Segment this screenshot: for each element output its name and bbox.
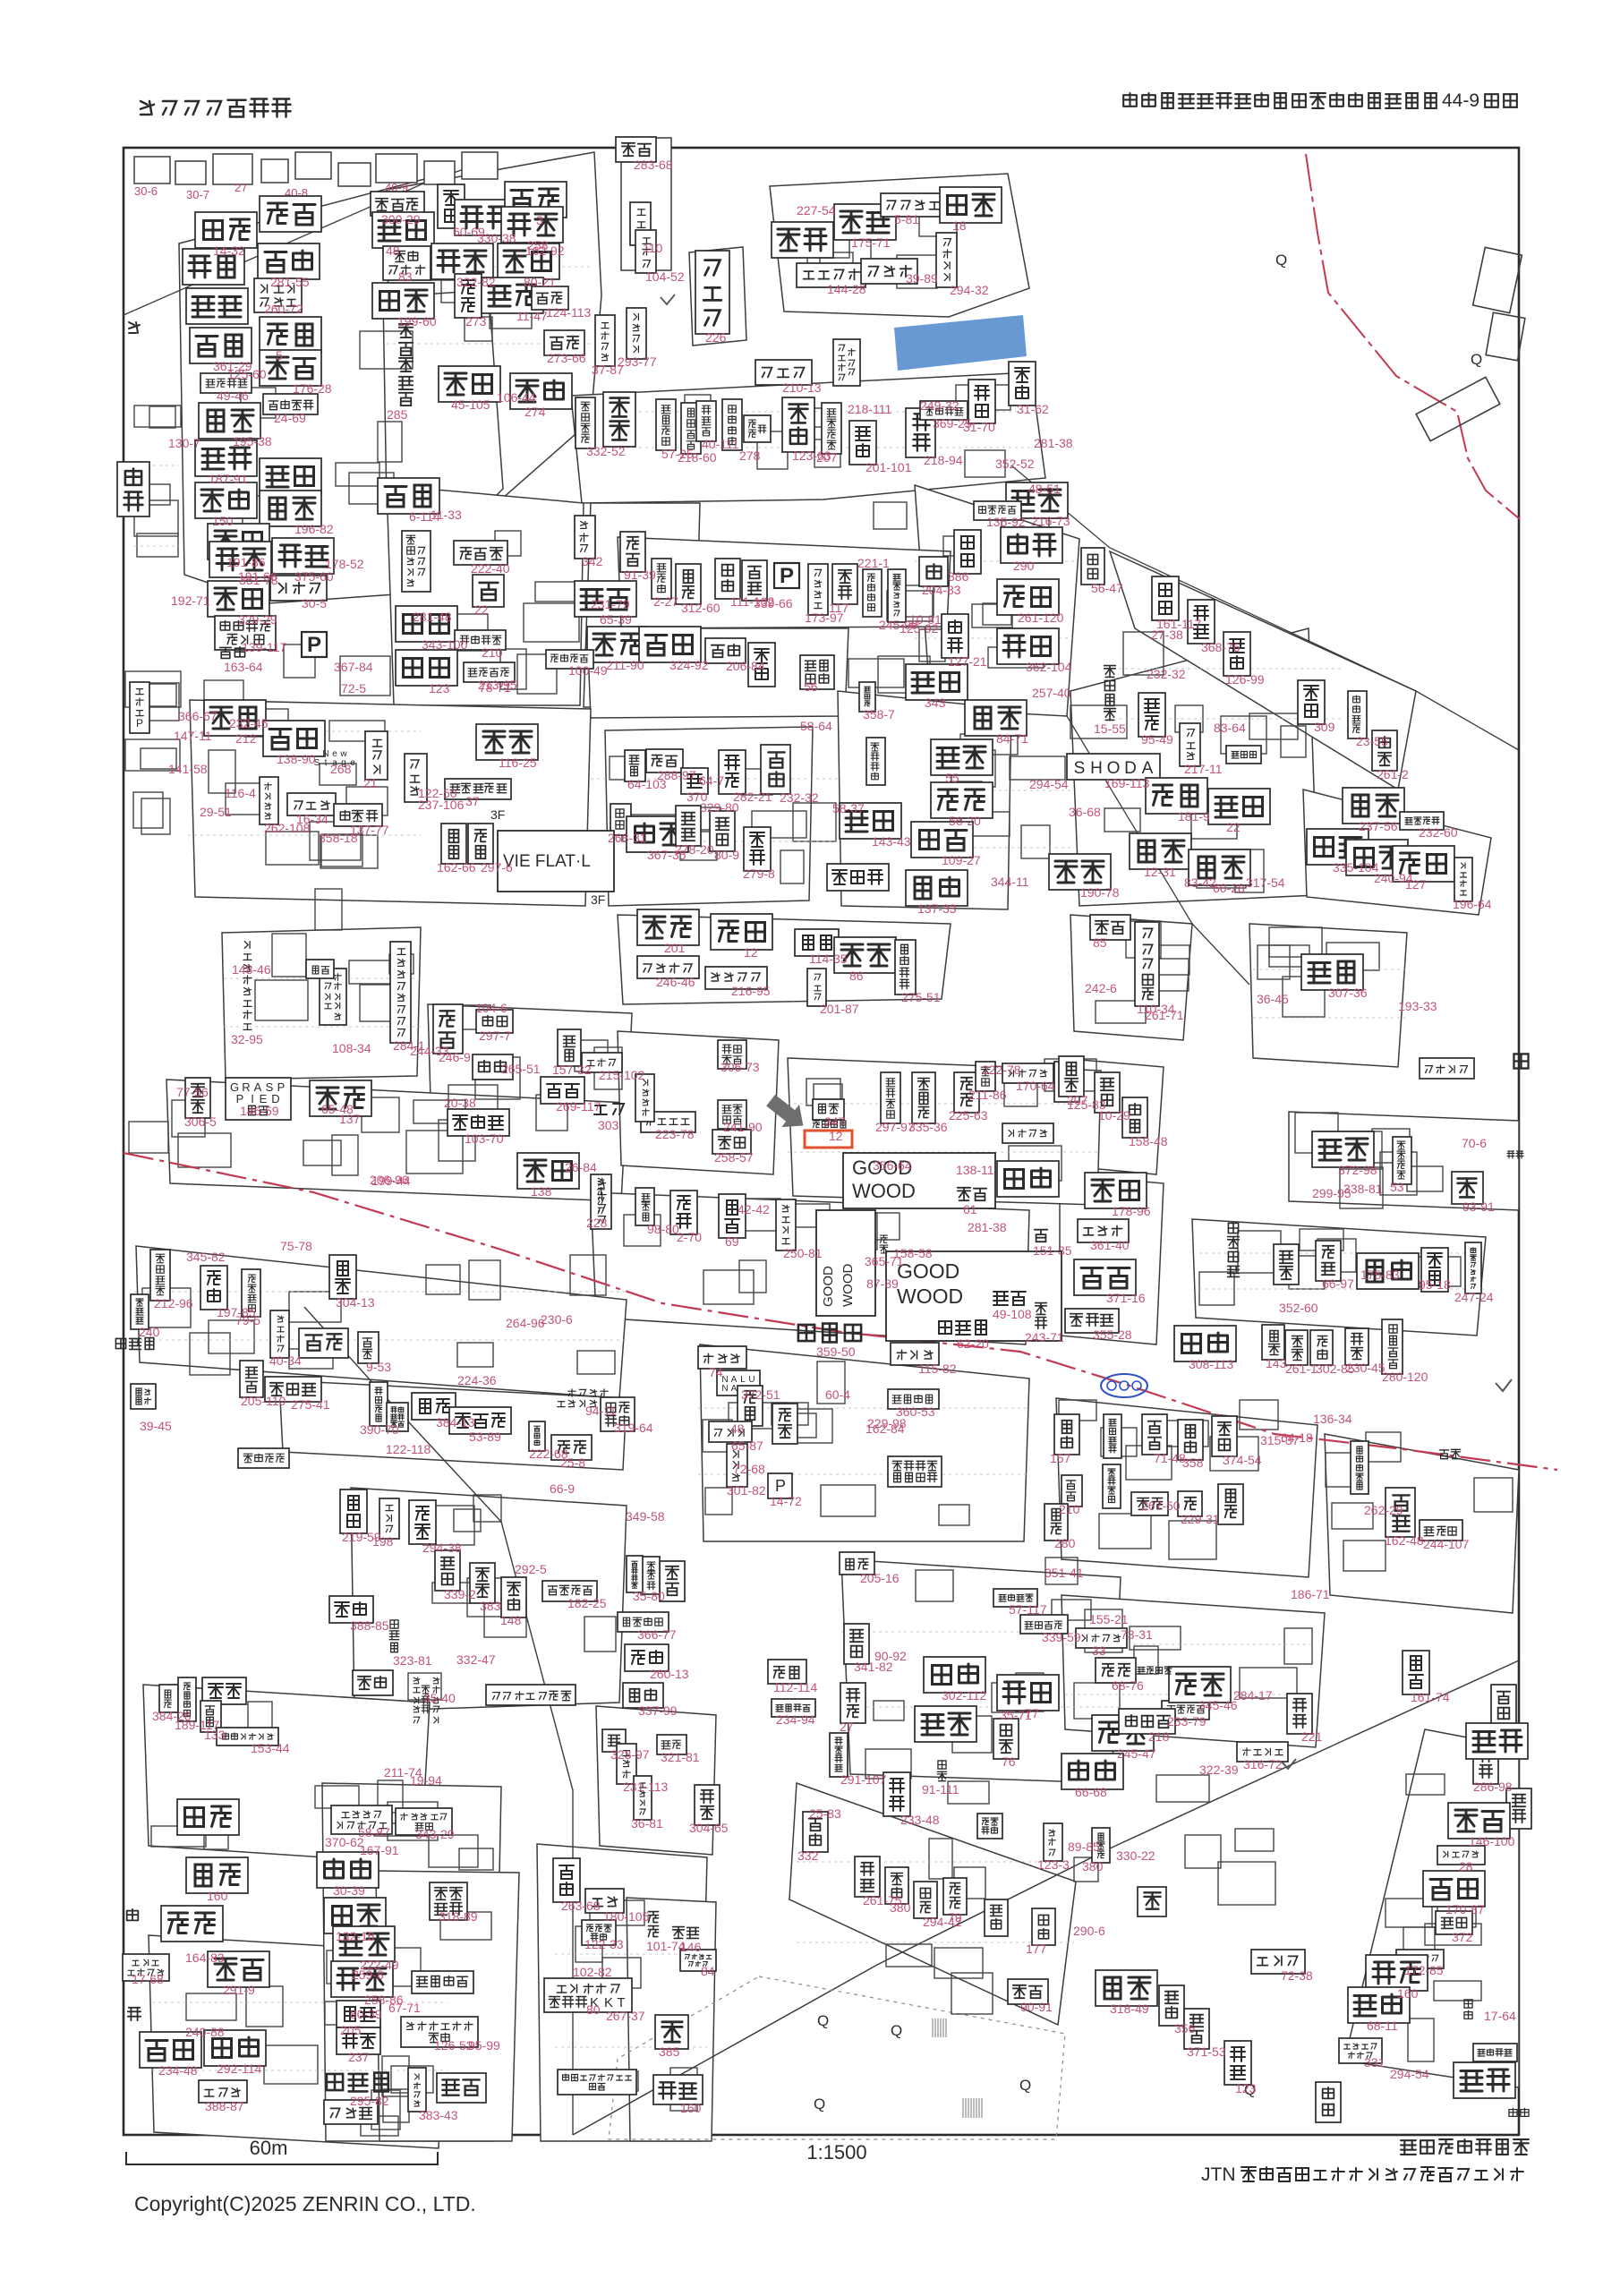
svg-text:275-51: 275-51: [901, 990, 941, 1004]
svg-text:295-82: 295-82: [350, 2094, 389, 2108]
svg-text:P: P: [136, 717, 143, 730]
svg-text:259-8: 259-8: [352, 1967, 384, 1982]
svg-text:304-65: 304-65: [689, 1821, 729, 1835]
svg-text:65-48: 65-48: [321, 1102, 354, 1116]
svg-text:196-82: 196-82: [294, 522, 334, 536]
svg-text:224-36: 224-36: [457, 1373, 497, 1387]
svg-text:138-90: 138-90: [277, 752, 316, 766]
svg-text:95-99: 95-99: [468, 2038, 500, 2053]
svg-text:317-54: 317-54: [1246, 875, 1285, 890]
svg-text:23-55: 23-55: [1356, 734, 1388, 748]
svg-text:245-47: 245-47: [1117, 1746, 1156, 1761]
svg-text:207: 207: [816, 450, 838, 465]
svg-text:170-87: 170-87: [1445, 1902, 1485, 1916]
svg-text:366-67: 366-67: [178, 709, 217, 723]
svg-text:234-94: 234-94: [776, 1712, 815, 1727]
svg-text:302-112: 302-112: [942, 1688, 987, 1703]
svg-text:WOOD: WOOD: [897, 1285, 963, 1308]
svg-text:204-83: 204-83: [922, 583, 961, 597]
svg-text:Q: Q: [891, 2022, 902, 2039]
svg-text:62-20: 62-20: [957, 1336, 989, 1351]
svg-text:199-44: 199-44: [371, 1174, 411, 1188]
svg-text:371-53: 371-53: [1187, 2044, 1226, 2059]
svg-text:280-120: 280-120: [1382, 1370, 1428, 1384]
svg-text:323-81: 323-81: [393, 1653, 432, 1668]
svg-text:175-83: 175-83: [1360, 1267, 1400, 1282]
svg-text:221-1: 221-1: [857, 556, 890, 570]
svg-text:286-98: 286-98: [1473, 1780, 1513, 1794]
svg-text:388-85: 388-85: [350, 1618, 389, 1633]
svg-text:304-13: 304-13: [336, 1295, 375, 1310]
svg-text:268: 268: [330, 762, 352, 776]
svg-text:218: 218: [1148, 1729, 1170, 1744]
svg-text:262-29: 262-29: [1364, 1503, 1403, 1517]
svg-text:249-32: 249-32: [920, 398, 959, 413]
svg-text:35-71: 35-71: [1000, 1708, 1032, 1722]
svg-text:72-38: 72-38: [1281, 1968, 1313, 1983]
svg-text:89-85: 89-85: [1068, 1839, 1100, 1854]
svg-text:87-89: 87-89: [866, 1276, 899, 1291]
svg-text:158-48: 158-48: [1129, 1134, 1168, 1148]
svg-text:139-117: 139-117: [242, 640, 287, 654]
svg-text:356-64: 356-64: [873, 1158, 912, 1173]
svg-text:83-42: 83-42: [1184, 875, 1216, 890]
svg-text:3F: 3F: [490, 807, 505, 822]
svg-text:273: 273: [465, 314, 487, 329]
svg-text:195-38: 195-38: [233, 434, 272, 448]
svg-text:330-38: 330-38: [477, 231, 516, 245]
svg-text:14-72: 14-72: [770, 1494, 802, 1508]
svg-text:231-113: 231-113: [623, 1780, 669, 1794]
svg-text:55: 55: [945, 771, 959, 785]
svg-text:322-82: 322-82: [456, 275, 496, 289]
svg-text:318-49: 318-49: [1110, 2002, 1149, 2016]
svg-text:70-6: 70-6: [1462, 1136, 1487, 1150]
svg-text:11-47: 11-47: [516, 309, 548, 323]
svg-text:308-113: 308-113: [1189, 1357, 1234, 1371]
svg-text:193-33: 193-33: [1398, 999, 1437, 1013]
svg-text:58-64: 58-64: [800, 719, 832, 733]
svg-text:332-47: 332-47: [456, 1652, 496, 1667]
svg-text:122-50: 122-50: [418, 786, 457, 800]
svg-text:347: 347: [824, 1114, 846, 1129]
svg-text:228: 228: [586, 1216, 608, 1230]
svg-text:57-117: 57-117: [1009, 1602, 1047, 1617]
svg-text:73-31: 73-31: [1121, 1627, 1153, 1642]
svg-text:56-20: 56-20: [949, 814, 981, 828]
svg-text:160: 160: [1397, 1986, 1419, 2001]
svg-text:80-9: 80-9: [714, 848, 739, 862]
svg-text:130-7: 130-7: [168, 436, 200, 450]
svg-text:181-9: 181-9: [1178, 809, 1210, 824]
svg-text:Q: Q: [1471, 351, 1482, 368]
svg-text:380: 380: [890, 1900, 911, 1915]
svg-text:138-11: 138-11: [956, 1163, 994, 1177]
svg-text:218-60: 218-60: [678, 450, 717, 465]
svg-text:148: 148: [500, 1613, 522, 1627]
svg-text:372-51: 372-51: [741, 1387, 780, 1402]
svg-text:95-49: 95-49: [1141, 732, 1173, 747]
svg-text:294-32: 294-32: [950, 283, 989, 297]
svg-text:316-72: 316-72: [1243, 1757, 1283, 1771]
svg-text:237: 237: [348, 2050, 370, 2064]
svg-text:65-87: 65-87: [731, 1438, 763, 1453]
svg-text:386: 386: [948, 569, 969, 584]
svg-text:321-81: 321-81: [661, 1750, 700, 1764]
svg-text:Q: Q: [1019, 2077, 1031, 2094]
svg-text:273-66: 273-66: [547, 351, 586, 365]
svg-text:225-63: 225-63: [949, 1108, 988, 1122]
svg-text:60m: 60m: [250, 2137, 288, 2159]
svg-text:39-45: 39-45: [140, 1419, 172, 1433]
svg-text:284-17: 284-17: [1233, 1688, 1273, 1703]
svg-text:169-113: 169-113: [1104, 776, 1150, 790]
svg-text:60-4: 60-4: [825, 1387, 850, 1402]
svg-text:148-46: 148-46: [232, 962, 271, 977]
svg-text:222-78: 222-78: [982, 1063, 1021, 1077]
svg-text:103-70: 103-70: [465, 1131, 504, 1146]
svg-text:66-9: 66-9: [550, 1481, 575, 1496]
svg-text:12: 12: [829, 1129, 843, 1143]
svg-text:222-40: 222-40: [471, 561, 510, 576]
svg-text:345-82: 345-82: [186, 1250, 226, 1264]
svg-text:190-78: 190-78: [1080, 885, 1120, 900]
svg-text:201-87: 201-87: [820, 1002, 859, 1016]
svg-text:126-99: 126-99: [1225, 672, 1265, 687]
svg-text:390-70: 390-70: [360, 1422, 399, 1437]
svg-text:281-38: 281-38: [968, 1220, 1007, 1234]
svg-text:175-71: 175-71: [851, 235, 891, 250]
svg-text:83: 83: [398, 269, 413, 284]
svg-text:191-86: 191-86: [226, 555, 266, 569]
svg-text:335-36: 335-36: [908, 1120, 948, 1134]
svg-text:69: 69: [725, 1234, 739, 1249]
svg-text:291-107: 291-107: [840, 1772, 887, 1787]
svg-text:t: t: [325, 758, 328, 768]
svg-text:198: 198: [372, 1534, 394, 1549]
svg-text:15-55: 15-55: [1094, 721, 1126, 736]
svg-text:157: 157: [1050, 1451, 1071, 1465]
svg-text:342: 342: [582, 554, 603, 568]
svg-text:48: 48: [730, 1421, 745, 1436]
svg-text:247-24: 247-24: [1454, 1290, 1494, 1304]
svg-text:232-60: 232-60: [1419, 825, 1458, 840]
svg-text:146-100: 146-100: [1469, 1834, 1515, 1848]
svg-text:375-60: 375-60: [294, 569, 334, 584]
svg-text:WOOD: WOOD: [840, 1264, 856, 1307]
svg-text:192-71: 192-71: [171, 593, 210, 608]
svg-text:337-99: 337-99: [638, 1703, 678, 1718]
svg-text:48-51: 48-51: [1028, 482, 1061, 496]
svg-text:11-33: 11-33: [431, 508, 462, 522]
svg-text:31-70: 31-70: [963, 420, 995, 434]
svg-text:71-48: 71-48: [1154, 1451, 1186, 1465]
svg-text:232-32: 232-32: [1147, 667, 1186, 681]
svg-text:293-77: 293-77: [618, 354, 657, 369]
svg-text:60-28: 60-28: [1213, 881, 1245, 895]
svg-text:9-53: 9-53: [366, 1360, 391, 1374]
svg-text:170-64: 170-64: [1016, 1079, 1055, 1093]
svg-text:135-92: 135-92: [986, 515, 1026, 529]
svg-text:VIE FLAT·L: VIE FLAT·L: [503, 852, 591, 871]
svg-text:109-27: 109-27: [942, 853, 981, 867]
svg-text:80: 80: [586, 2002, 601, 2017]
svg-text:244-107: 244-107: [1423, 1537, 1470, 1551]
svg-text:123: 123: [429, 681, 450, 696]
svg-text:356: 356: [1174, 2021, 1196, 2036]
svg-text:281-38: 281-38: [1034, 436, 1073, 450]
svg-text:5: 5: [276, 348, 283, 363]
svg-text:374-54: 374-54: [1223, 1453, 1262, 1467]
svg-text:Q: Q: [817, 2012, 829, 2029]
svg-text:2-70: 2-70: [677, 1230, 702, 1244]
svg-text:212: 212: [235, 731, 257, 746]
svg-text:104-52: 104-52: [645, 269, 685, 284]
svg-text:237-56: 237-56: [1359, 819, 1398, 833]
svg-text:P: P: [307, 633, 321, 657]
svg-text:D: D: [1124, 759, 1137, 778]
svg-text:56: 56: [804, 679, 818, 694]
svg-text:27: 27: [234, 181, 247, 194]
svg-text:40-34: 40-34: [269, 1353, 302, 1368]
svg-text:114-35: 114-35: [809, 952, 848, 966]
svg-text:158-58: 158-58: [893, 1246, 933, 1260]
svg-text:186-71: 186-71: [1291, 1587, 1330, 1601]
svg-text:78-71: 78-71: [479, 680, 511, 695]
svg-text:201: 201: [664, 941, 686, 955]
svg-text:30-39: 30-39: [333, 1883, 365, 1898]
svg-text:339-2: 339-2: [444, 1587, 476, 1601]
svg-text:36-81: 36-81: [631, 1816, 663, 1831]
svg-text:261-120: 261-120: [1018, 610, 1064, 625]
svg-text:329-80: 329-80: [700, 800, 739, 815]
svg-text:146: 146: [680, 1940, 702, 1954]
svg-text:221: 221: [1301, 1729, 1323, 1744]
svg-text:125-60: 125-60: [227, 367, 267, 381]
svg-text:339-66: 339-66: [754, 596, 793, 610]
svg-text:268-31: 268-31: [608, 831, 647, 845]
svg-text:24-69: 24-69: [274, 411, 306, 425]
svg-text:151-35: 151-35: [1033, 1243, 1072, 1258]
svg-text:279-8: 279-8: [743, 866, 775, 881]
svg-text:343-29: 343-29: [415, 1827, 455, 1841]
svg-text:143-43: 143-43: [872, 834, 911, 849]
svg-text:3F: 3F: [591, 892, 605, 907]
svg-text:361-40: 361-40: [1090, 1238, 1130, 1252]
svg-text:108-34: 108-34: [332, 1041, 371, 1055]
svg-text:291-9: 291-9: [223, 1983, 255, 1997]
svg-text:290-6: 290-6: [1073, 1924, 1105, 1938]
svg-text:240-88: 240-88: [185, 2025, 225, 2039]
svg-text:385: 385: [659, 2044, 680, 2059]
svg-text:90-91: 90-91: [1020, 2000, 1053, 2014]
svg-text:352-60: 352-60: [1279, 1301, 1318, 1315]
svg-text:35-40: 35-40: [423, 1691, 456, 1705]
svg-text:330-22: 330-22: [1116, 1848, 1155, 1863]
svg-text:GOOD: GOOD: [897, 1259, 959, 1283]
svg-text:349-58: 349-58: [626, 1509, 665, 1524]
svg-text:30-5: 30-5: [302, 596, 327, 610]
svg-text:68-76: 68-76: [1112, 1678, 1144, 1693]
svg-text:383-43: 383-43: [419, 2108, 458, 2122]
svg-text:368-76: 368-76: [1201, 640, 1241, 654]
svg-text:122-118: 122-118: [386, 1442, 431, 1456]
svg-text:257-40: 257-40: [1032, 686, 1071, 700]
svg-text:153-44: 153-44: [251, 1741, 290, 1755]
svg-text:117: 117: [829, 601, 849, 615]
svg-text:42-42: 42-42: [738, 1202, 770, 1216]
svg-text:180-105: 180-105: [603, 1909, 650, 1924]
svg-text:143: 143: [1266, 1356, 1287, 1370]
svg-text:294-54: 294-54: [1029, 777, 1069, 791]
svg-text:292-114: 292-114: [217, 2061, 262, 2076]
svg-text:25-83: 25-83: [809, 1806, 841, 1821]
svg-text:384-13: 384-13: [436, 1415, 475, 1430]
svg-text:33: 33: [1092, 1643, 1106, 1658]
svg-text:212-96: 212-96: [154, 1296, 193, 1310]
svg-text:243-71: 243-71: [1025, 1330, 1064, 1344]
svg-text:260-72: 260-72: [264, 302, 303, 316]
svg-text:265-51: 265-51: [501, 1062, 541, 1076]
svg-text:90-92: 90-92: [874, 1649, 907, 1663]
svg-text:137-33: 137-33: [917, 901, 957, 916]
svg-text:278: 278: [739, 448, 761, 463]
svg-text:269-117: 269-117: [556, 1099, 601, 1114]
svg-text:64-18: 64-18: [1281, 1430, 1313, 1445]
svg-text:44-9: 44-9: [1442, 90, 1479, 111]
svg-text:162-92: 162-92: [525, 243, 565, 258]
svg-text:123: 123: [1235, 2081, 1257, 2095]
svg-text:241-90: 241-90: [723, 1120, 763, 1134]
svg-text:150: 150: [212, 514, 234, 528]
svg-text:205: 205: [340, 2023, 362, 2037]
svg-text:136-34: 136-34: [1313, 1412, 1352, 1426]
svg-text:H: H: [1090, 759, 1103, 778]
svg-text:127: 127: [1405, 877, 1427, 892]
svg-text:187-91: 187-91: [209, 472, 248, 486]
svg-text:37: 37: [465, 794, 480, 808]
svg-text:210: 210: [482, 645, 503, 660]
svg-text:100-49: 100-49: [568, 663, 608, 678]
svg-text:278-20: 278-20: [675, 842, 714, 857]
svg-text:144-28: 144-28: [827, 282, 866, 296]
svg-text:160: 160: [207, 1889, 228, 1903]
svg-text:66-68: 66-68: [1075, 1785, 1107, 1799]
svg-text:110: 110: [643, 241, 663, 255]
svg-text:232-45: 232-45: [229, 716, 269, 730]
svg-text:372-98: 372-98: [1338, 1163, 1377, 1177]
svg-text:222-68: 222-68: [529, 1447, 568, 1461]
svg-text:122-33: 122-33: [584, 1937, 624, 1951]
svg-text:80-21: 80-21: [524, 275, 556, 289]
svg-text:N: N: [721, 1384, 728, 1394]
svg-text:36-68: 36-68: [1069, 805, 1101, 819]
svg-text:233-79: 233-79: [1167, 1714, 1206, 1728]
svg-text:132-16: 132-16: [336, 1929, 375, 1943]
svg-text:162-66: 162-66: [437, 860, 476, 875]
svg-text:318-89: 318-89: [439, 1909, 478, 1924]
svg-text:205-16: 205-16: [860, 1571, 900, 1585]
svg-text:306-5: 306-5: [184, 1114, 217, 1129]
svg-text:49-108: 49-108: [993, 1307, 1032, 1321]
svg-text:210: 210: [1059, 1502, 1080, 1516]
svg-text:161-74: 161-74: [1411, 1690, 1450, 1704]
svg-text:Q: Q: [1275, 252, 1287, 269]
svg-text:124-113: 124-113: [546, 305, 592, 320]
svg-text:84: 84: [701, 1964, 715, 1978]
svg-text:196-64: 196-64: [1453, 897, 1492, 911]
svg-text:383: 383: [480, 1599, 501, 1613]
svg-text:56-47: 56-47: [1091, 581, 1123, 595]
svg-text:157-32: 157-32: [552, 1063, 592, 1077]
svg-text:GOOD: GOOD: [821, 1266, 836, 1307]
svg-text:3: 3: [536, 213, 543, 227]
svg-text:205-110: 205-110: [241, 1394, 286, 1408]
svg-text:49-46: 49-46: [217, 388, 249, 403]
svg-text:230-6: 230-6: [541, 1312, 573, 1327]
svg-text:227-54: 227-54: [797, 203, 836, 218]
svg-text:306-73: 306-73: [720, 1060, 760, 1074]
svg-text:275-41: 275-41: [291, 1397, 330, 1412]
svg-text:2-27: 2-27: [653, 594, 678, 609]
svg-text:358: 358: [1182, 1455, 1204, 1470]
svg-text:147-11: 147-11: [174, 729, 212, 743]
svg-text:300-29: 300-29: [381, 212, 421, 226]
svg-text:95-18: 95-18: [1419, 1277, 1451, 1292]
svg-text:30-7: 30-7: [186, 188, 209, 201]
svg-text:242-6: 242-6: [1085, 981, 1117, 995]
svg-text:84-71: 84-71: [996, 731, 1028, 746]
svg-text:229-31: 229-31: [1181, 1512, 1220, 1526]
svg-text:39-89: 39-89: [906, 271, 938, 286]
svg-text:323-97: 323-97: [610, 1747, 650, 1762]
svg-text:201-101: 201-101: [865, 460, 912, 474]
svg-text:281-55: 281-55: [270, 275, 310, 289]
svg-text:319-64: 319-64: [614, 1421, 653, 1435]
svg-text:22: 22: [1226, 820, 1241, 834]
svg-text:352-52: 352-52: [995, 457, 1035, 471]
svg-text:80-39: 80-39: [350, 2007, 382, 2021]
svg-text:86: 86: [849, 969, 864, 983]
svg-text:16-34: 16-34: [296, 812, 328, 826]
svg-text:345-46: 345-46: [1198, 1698, 1238, 1712]
svg-text:106-44: 106-44: [497, 390, 536, 405]
svg-text:331: 331: [1364, 2055, 1386, 2070]
svg-text:65-39: 65-39: [600, 612, 632, 627]
svg-text:61: 61: [963, 1202, 977, 1216]
svg-text:172-85: 172-85: [1404, 1963, 1444, 1977]
svg-text:367-84: 367-84: [334, 660, 373, 674]
svg-text:299-95: 299-95: [1312, 1186, 1351, 1200]
svg-text:359-50: 359-50: [816, 1344, 856, 1359]
svg-text:104-6: 104-6: [475, 1001, 507, 1015]
svg-text:372: 372: [1452, 1930, 1473, 1944]
svg-text:79-5: 79-5: [235, 1313, 260, 1327]
svg-text:312-60: 312-60: [681, 601, 720, 615]
svg-text:94-11: 94-11: [585, 1404, 617, 1418]
svg-text:O: O: [1107, 759, 1121, 778]
svg-text:74: 74: [709, 1365, 723, 1379]
svg-text:68-11: 68-11: [1367, 2019, 1398, 2033]
svg-text:260-13: 260-13: [650, 1667, 689, 1681]
svg-text:77-56: 77-56: [176, 1085, 209, 1099]
svg-text:211-90: 211-90: [606, 658, 644, 672]
svg-text:22: 22: [474, 602, 489, 617]
svg-text:146-59: 146-59: [240, 1104, 279, 1118]
svg-text:P: P: [780, 564, 794, 588]
svg-text:1:1500: 1:1500: [806, 2141, 866, 2164]
svg-text:58-37: 58-37: [832, 801, 865, 815]
